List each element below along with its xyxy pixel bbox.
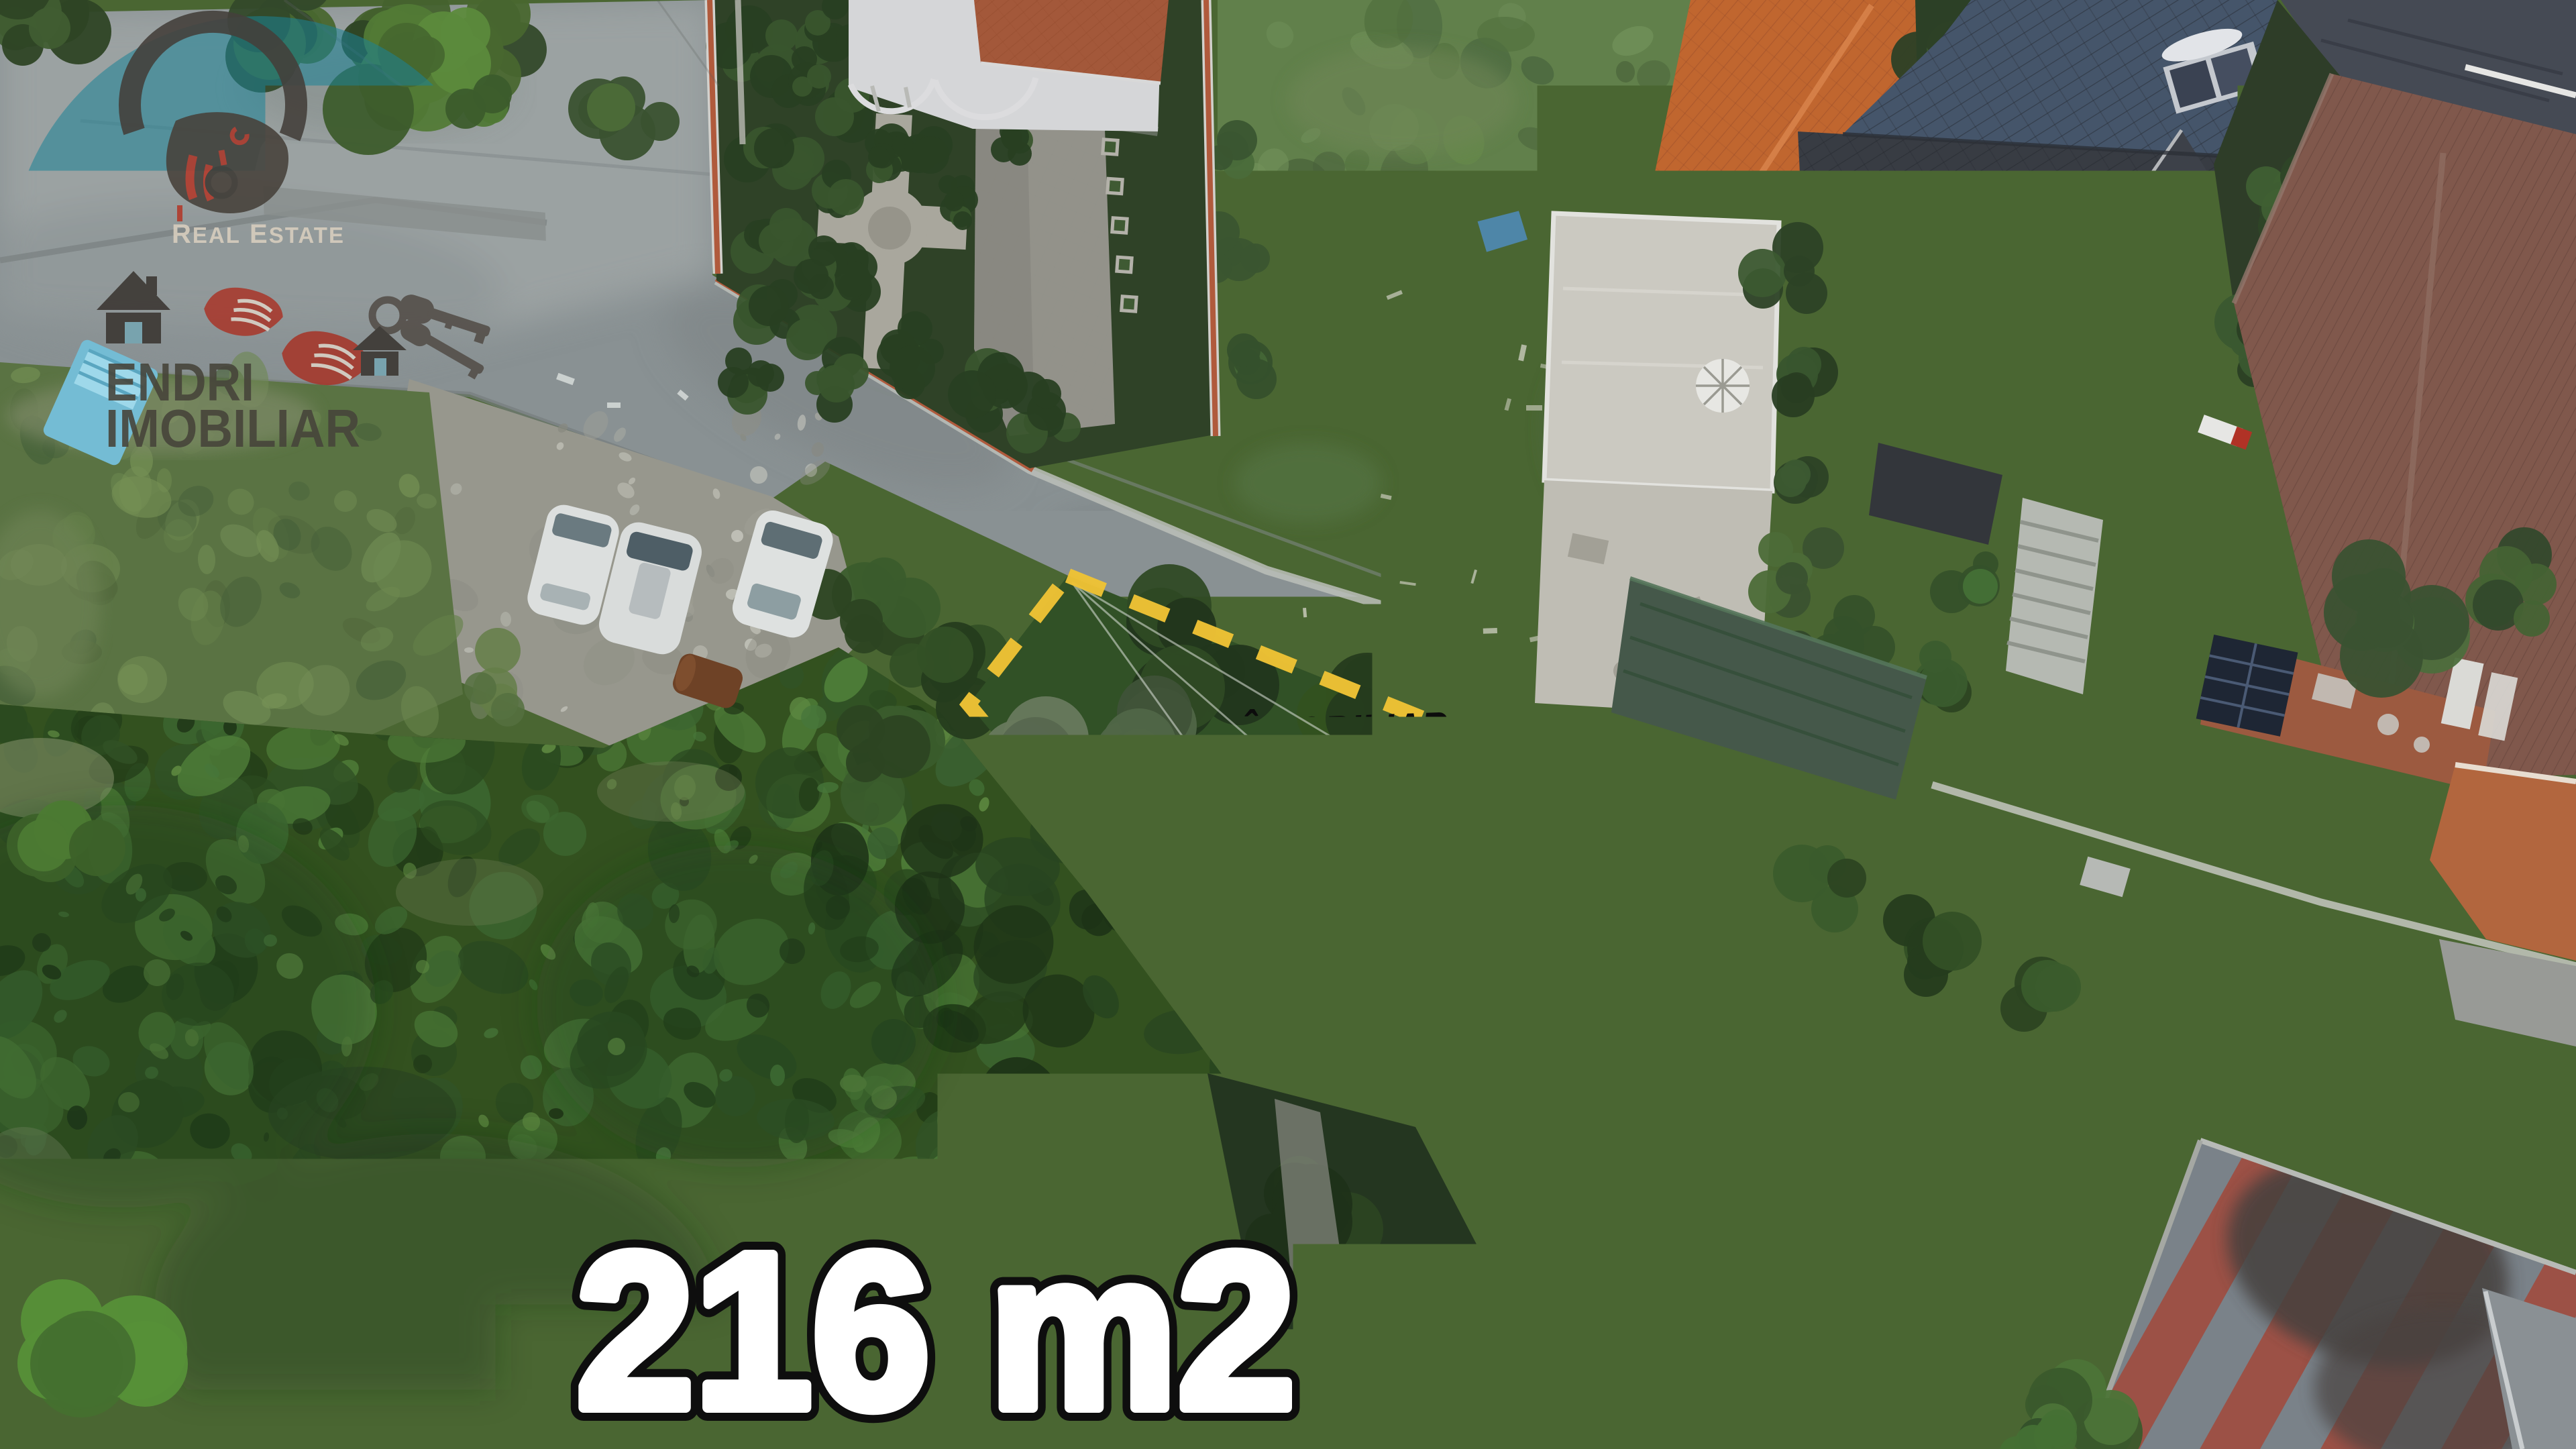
svg-text:216 m2: 216 m2 <box>576 1207 1295 1449</box>
svg-text:IMOBILIAR: IMOBILIAR <box>105 398 360 458</box>
svg-text:ENDR Î MOBILIAR: ENDR Î MOBILIAR <box>1127 702 1450 766</box>
svg-text:REAL ESTATE: REAL ESTATE <box>172 219 345 249</box>
